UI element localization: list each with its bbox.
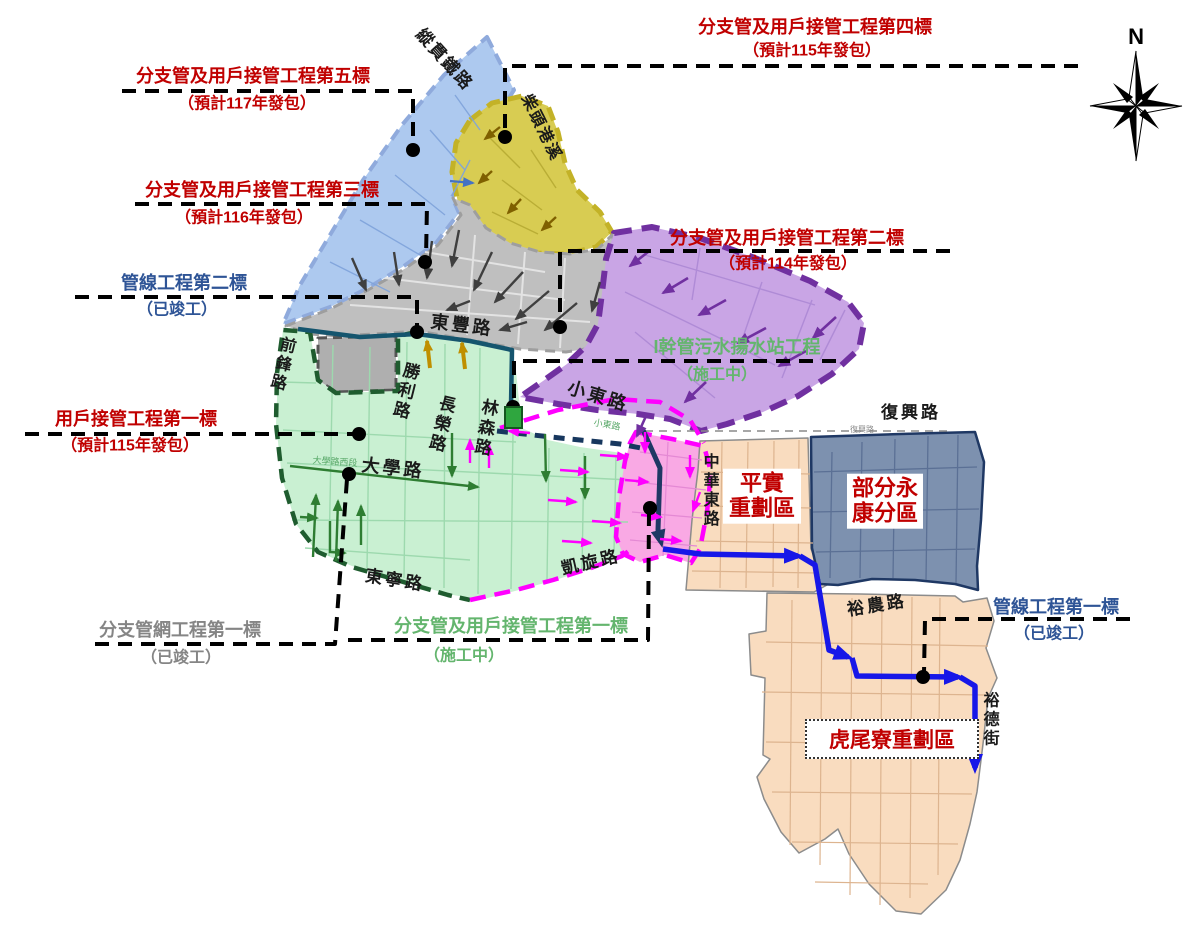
label-pipe1-name: 管線工程第一標 <box>993 597 1119 619</box>
region-pingshi-line2: 重劃區 <box>729 496 795 521</box>
road-zhonghua: 中華東路 <box>699 453 718 529</box>
label-branch5-name: 分支管及用戶接管工程第五標 <box>136 66 370 88</box>
road-fuxing: 復興路 <box>881 403 941 423</box>
region-pingshi: 平實 重劃區 <box>723 469 801 524</box>
label-user1-name: 用戶接管工程第一標 <box>55 409 217 431</box>
sewerage-project-map: N 分支管及用戶接管工程第四標 （預計115年發包） 分支管及用戶接管工程第五標… <box>0 0 1200 928</box>
compass-rose: N <box>1090 24 1182 161</box>
region-pingshi-line1: 平實 <box>729 471 795 496</box>
label-branch1-name: 分支管及用戶接管工程第一標 <box>394 616 628 638</box>
pump-station-marker <box>505 407 522 428</box>
label-pipe2-status: （已竣工） <box>137 300 217 319</box>
road-yude: 裕德街 <box>979 692 998 749</box>
region-yongkang-line1: 部分永 <box>852 476 918 501</box>
region-yongkang-line2: 康分區 <box>852 501 918 526</box>
zone-gray-annex <box>318 336 396 392</box>
label-branch3-status: （預計116年發包） <box>175 208 313 227</box>
label-branch4-name: 分支管及用戶接管工程第四標 <box>698 17 932 39</box>
label-user1-status: （預計115年發包） <box>61 436 199 455</box>
label-branch2-status: （預計114年發包） <box>719 254 857 273</box>
road-fuxing-small: 復興路 <box>850 425 874 435</box>
label-pump-status: （施工中） <box>677 365 757 384</box>
label-branch2-name: 分支管及用戶接管工程第二標 <box>670 228 904 250</box>
label-net1-status: （已竣工） <box>141 648 221 667</box>
label-branch3-name: 分支管及用戶接管工程第三標 <box>145 180 379 202</box>
label-pipe1-status: （已竣工） <box>1014 624 1094 643</box>
map-canvas: N <box>0 0 1200 928</box>
region-yongkang: 部分永 康分區 <box>847 474 923 529</box>
region-huweiliao: 虎尾寮重劃區 <box>805 719 979 759</box>
label-branch1-status: （施工中） <box>424 646 504 665</box>
label-branch5-status: （預計117年發包） <box>178 94 316 113</box>
label-pipe2-name: 管線工程第二標 <box>121 273 247 295</box>
compass-north-label: N <box>1128 24 1144 49</box>
label-pump-name: I幹管污水揚水站工程 <box>653 337 820 359</box>
leader-branch4 <box>505 66 1078 133</box>
label-net1-name: 分支管網工程第一標 <box>99 620 261 642</box>
label-branch4-status: （預計115年發包） <box>743 41 881 60</box>
